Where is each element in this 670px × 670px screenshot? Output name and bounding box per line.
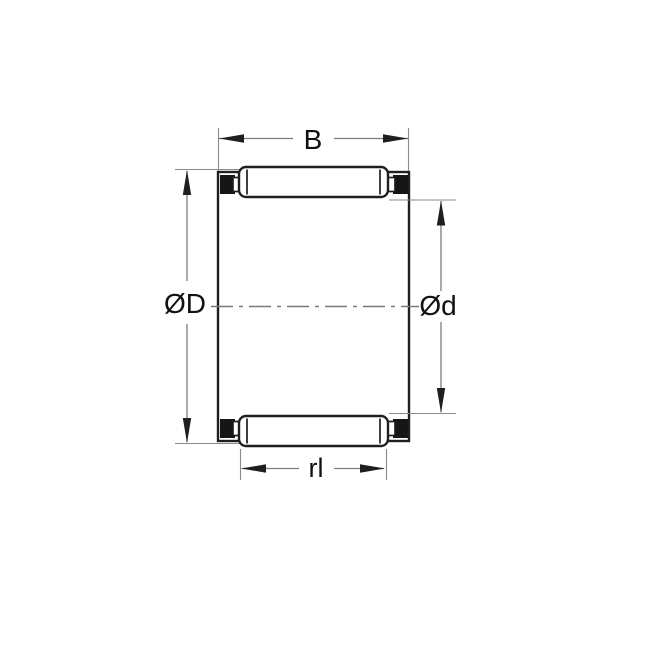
- arrowhead-up: [437, 201, 445, 226]
- dimension-label-rl: rl: [309, 453, 324, 483]
- drawing-canvas: B ØD Ød: [0, 0, 670, 670]
- arrowhead-left: [219, 134, 244, 142]
- roller-body: [239, 416, 388, 446]
- bearing-technical-drawing: B ØD Ød: [0, 0, 670, 670]
- arrowhead-up: [183, 170, 191, 195]
- dimension-label-b: B: [304, 124, 323, 155]
- roller-body: [239, 167, 388, 197]
- dimension-label-od-small: Ød: [419, 290, 456, 321]
- arrowhead-left: [241, 464, 266, 472]
- needle-roller-top: [239, 167, 388, 197]
- arrowhead-down: [437, 388, 445, 413]
- arrowhead-down: [183, 418, 191, 443]
- arrowhead-right: [383, 134, 408, 142]
- dimension-width-b: B: [219, 124, 409, 171]
- dimension-roller-length: rl: [241, 449, 387, 483]
- dimension-label-od: ØD: [164, 288, 206, 319]
- needle-roller-bottom: [239, 416, 388, 446]
- arrowhead-right: [360, 464, 385, 472]
